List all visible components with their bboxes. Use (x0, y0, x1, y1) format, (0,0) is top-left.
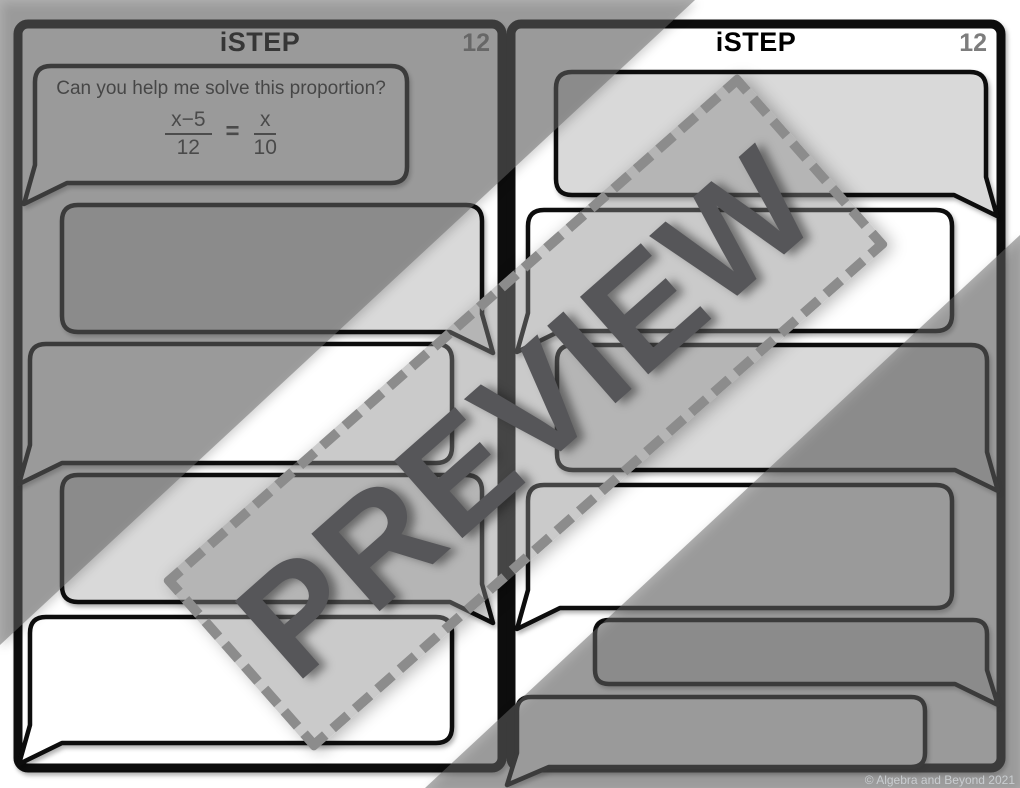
fraction-right: x 10 (254, 108, 277, 159)
question-text: Can you help me solve this proportion? (48, 78, 394, 100)
worksheet-preview-page: iSTEP 12 iSTEP 12 Can you help me solve … (0, 0, 1020, 788)
copyright-text: © Algebra and Beyond 2021 (865, 773, 1015, 787)
fraction-left-denominator: 12 (177, 135, 200, 160)
fraction-right-numerator: x (254, 108, 277, 135)
fraction-left-numerator: x−5 (165, 108, 211, 135)
fraction-left: x−5 12 (165, 108, 211, 159)
left-step-number: 12 (22, 29, 490, 58)
equals-sign: = (226, 118, 240, 150)
fraction-right-denominator: 10 (254, 135, 277, 160)
proportion-equation: x−5 12 = x 10 (48, 108, 394, 159)
right-step-number: 12 (513, 29, 987, 58)
